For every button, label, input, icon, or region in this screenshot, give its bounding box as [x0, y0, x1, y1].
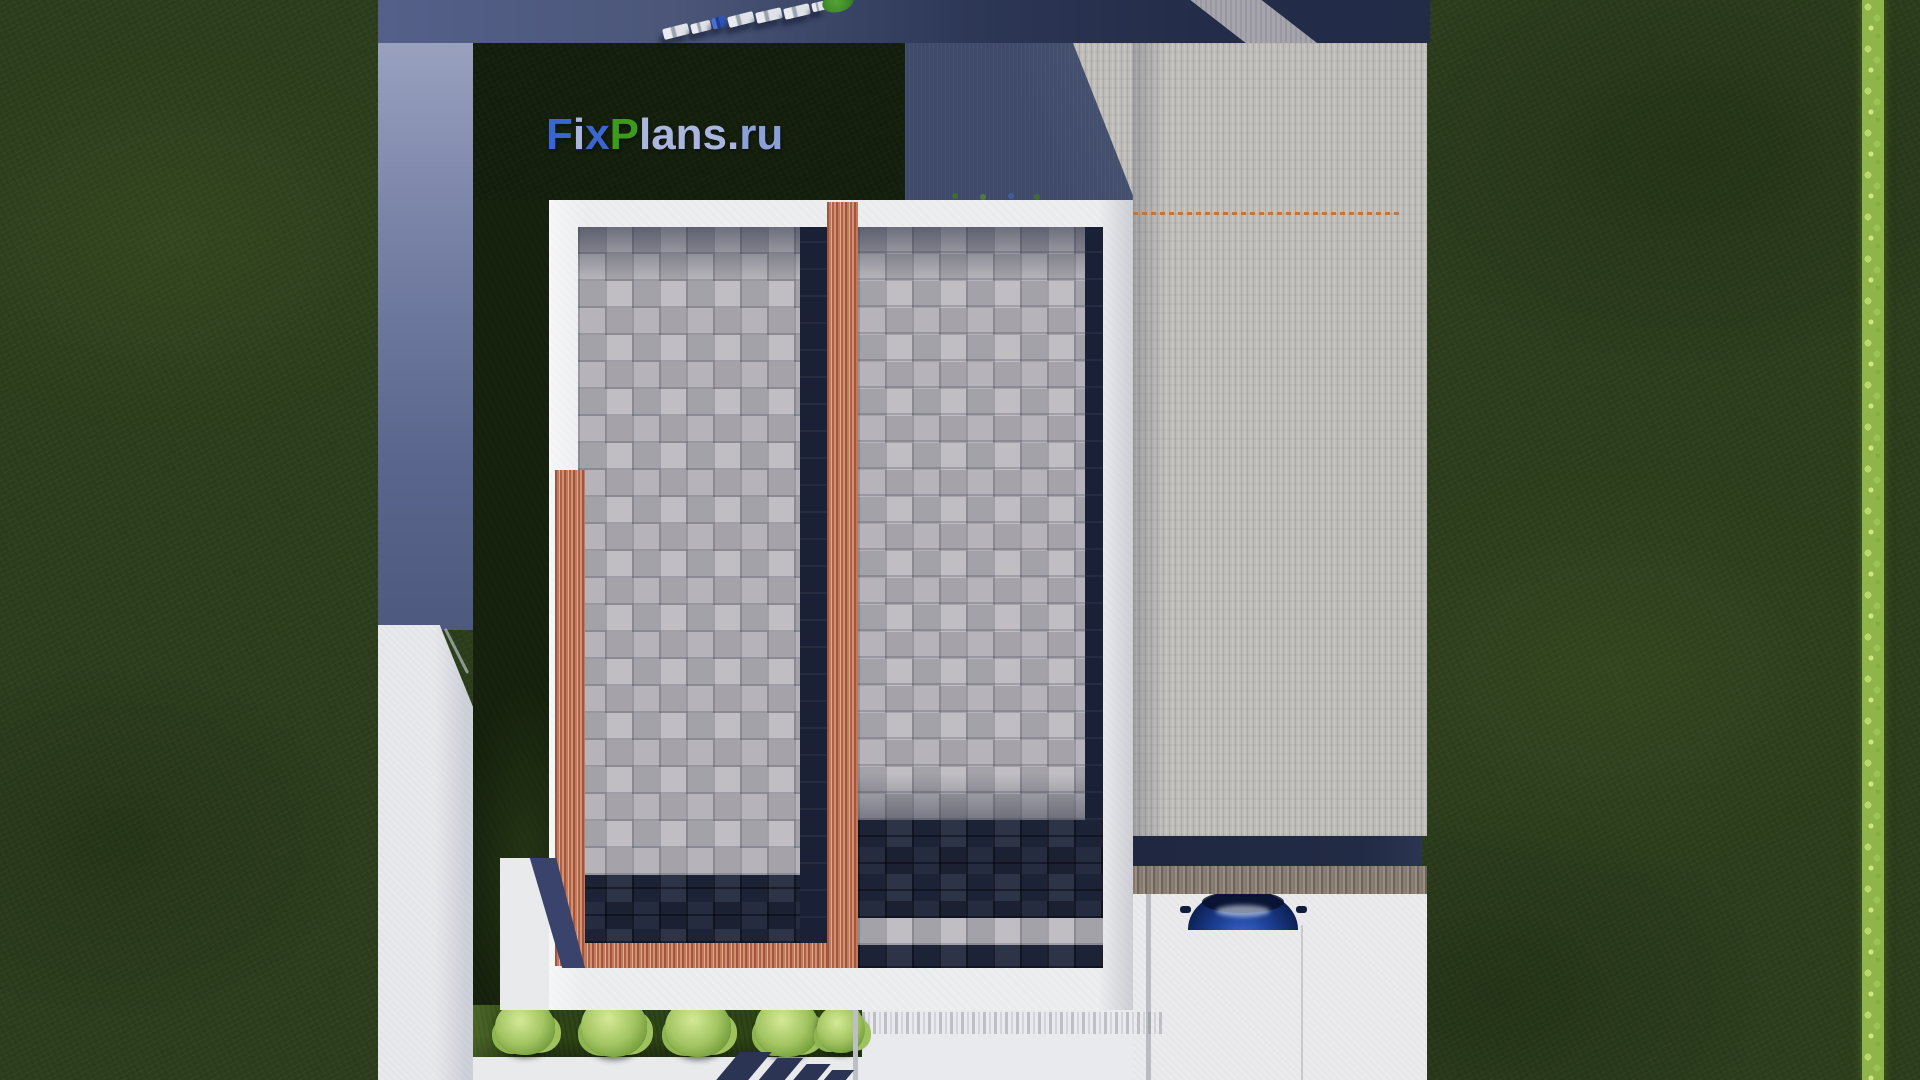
side-path-sunlit	[378, 625, 473, 1080]
roof-dark-section-right	[858, 820, 1103, 918]
plant-dot	[1034, 194, 1040, 200]
paving-seam	[1301, 925, 1303, 1080]
roof-dark-section-left	[578, 875, 807, 943]
blue-car	[1188, 889, 1298, 930]
logo-segment: ru	[739, 110, 783, 159]
terracotta-band-bottom	[583, 943, 858, 968]
paver-texture-band	[862, 1012, 1162, 1034]
hedge-line	[1862, 0, 1884, 1080]
roof-shadow-top	[858, 227, 1085, 279]
plant-dot	[1008, 193, 1014, 199]
fixplans-watermark: FixPlans.ru	[546, 113, 783, 157]
roof-channel-center	[800, 227, 827, 945]
roof-shadow-bottom	[858, 774, 1085, 820]
lawn-strip	[473, 1005, 862, 1057]
logo-segment: .	[727, 110, 739, 159]
logo-segment: x	[585, 110, 609, 159]
logo-segment: P	[610, 110, 639, 159]
logo-segment: i	[573, 110, 585, 159]
orange-dashed-marking	[1133, 212, 1401, 215]
logo-segment: lans	[639, 110, 727, 159]
roof-channel-right	[1085, 227, 1103, 820]
logo-segment: F	[546, 110, 573, 159]
plant-dot	[980, 194, 986, 200]
roof-panel-right	[858, 227, 1085, 820]
pad-edge-shadow-band	[1133, 836, 1422, 868]
terracotta-strip-center	[827, 202, 858, 968]
car-highlight	[1216, 905, 1270, 917]
paving-groove-left	[853, 1005, 858, 1080]
plant-dot	[952, 193, 958, 199]
car-mirror-left	[1180, 906, 1191, 913]
car-mirror-right	[1296, 906, 1307, 913]
carport-deck-edge	[1133, 866, 1427, 894]
side-path-shadowed	[378, 43, 473, 630]
paving-groove-right	[1146, 893, 1151, 1080]
roof-light-strip-bottom	[858, 918, 1103, 945]
roof-panel-left	[578, 227, 800, 875]
roof-dark-strip-bottom	[858, 945, 1103, 968]
roof-shadow-top	[578, 227, 800, 279]
aerial-render-canvas: { "watermark": { "text": "FixPlans.ru", …	[0, 0, 1920, 1080]
